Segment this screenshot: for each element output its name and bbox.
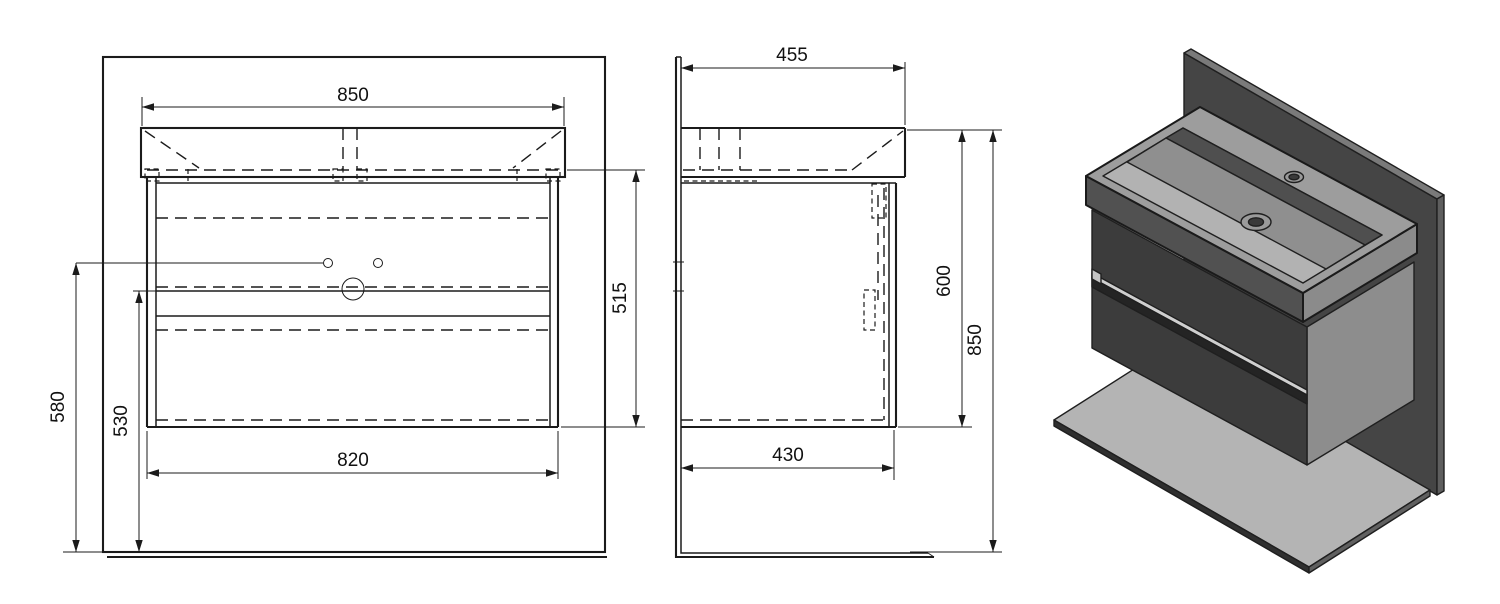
side-wall-floor-inner (681, 57, 928, 553)
front-siphon-hole (342, 278, 364, 300)
dim-front-width-top: 850 (142, 85, 564, 126)
iso-faucet-hole (1289, 174, 1299, 180)
dim-side-depth-top: 455 (681, 45, 905, 125)
arrow-down-icon (989, 540, 996, 552)
dim-side-height-cabinet: 600 (898, 130, 972, 427)
arrow-right-icon (893, 64, 905, 72)
technical-drawing: 850 515 580 530 (0, 0, 1500, 604)
arrow-left-icon (147, 469, 159, 477)
arrow-left-icon (681, 464, 693, 472)
drawing-sheet: 850 515 580 530 (0, 0, 1500, 604)
front-hidden-tab (333, 169, 343, 181)
arrow-up-icon (958, 130, 965, 142)
dim-label: 580 (48, 391, 69, 423)
dim-label: 820 (337, 450, 369, 471)
dim-front-height-inner: 530 (111, 291, 158, 552)
front-basin-slope-right (513, 131, 561, 168)
iso-wall-right-edge (1437, 195, 1444, 495)
dim-label: 600 (934, 265, 955, 297)
dim-side-height-total: 850 (910, 130, 1002, 552)
dim-label: 530 (111, 405, 132, 437)
arrow-up-icon (632, 170, 639, 182)
side-hidden-bracket (864, 290, 875, 330)
dim-label: 455 (776, 45, 808, 66)
dim-front-height-outer: 580 (48, 263, 80, 552)
dim-label: 850 (337, 85, 369, 106)
dim-label: 850 (965, 324, 986, 356)
arrow-up-icon (135, 291, 142, 303)
arrow-right-icon (882, 464, 894, 472)
arrow-left-icon (142, 103, 154, 111)
arrow-left-icon (681, 64, 693, 72)
arrow-down-icon (135, 540, 142, 552)
arrow-up-icon (72, 263, 79, 275)
arrow-right-icon (552, 103, 564, 111)
dim-front-width-bottom: 820 (147, 431, 558, 479)
iso-drain-hole (1249, 218, 1264, 226)
front-wall-panel-outline (103, 57, 605, 552)
front-basin-slope-left (145, 131, 199, 168)
arrow-down-icon (632, 415, 639, 427)
arrow-down-icon (72, 540, 79, 552)
arrow-right-icon (546, 469, 558, 477)
side-view: 455 600 850 430 (673, 45, 1002, 557)
arrow-down-icon (958, 415, 965, 427)
isometric-view (1054, 49, 1444, 573)
dim-label: 515 (610, 282, 631, 314)
front-mount-hole-right (374, 259, 383, 268)
dim-label: 430 (772, 445, 804, 466)
dim-side-depth-bottom: 430 (681, 430, 894, 480)
arrow-up-icon (989, 130, 996, 142)
side-basin-hidden-slope (852, 131, 903, 170)
front-mount-hole-left (324, 259, 333, 268)
dim-front-height-right: 515 (561, 170, 645, 427)
front-view: 850 515 580 530 (48, 57, 645, 557)
front-hidden-tab (357, 169, 367, 181)
